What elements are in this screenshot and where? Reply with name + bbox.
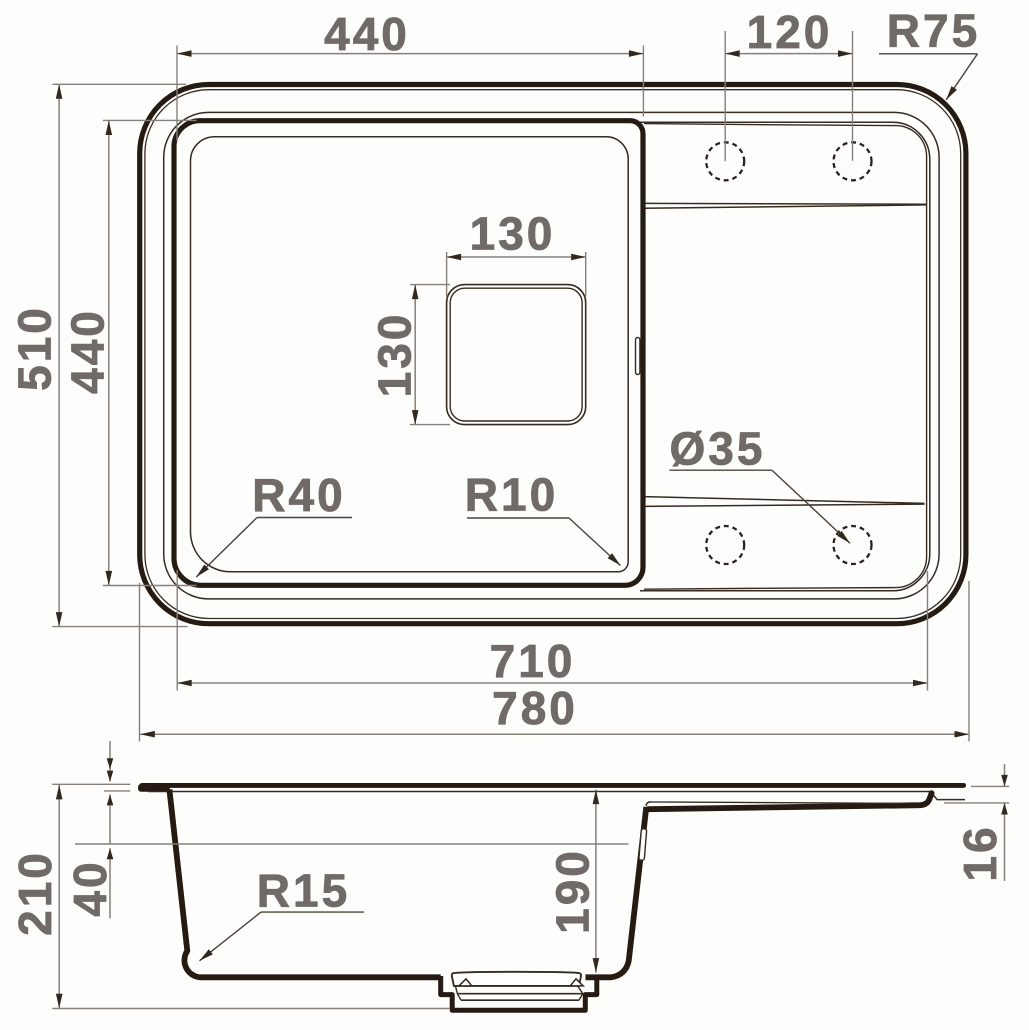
svg-text:710: 710	[490, 635, 576, 687]
svg-text:R40: R40	[252, 469, 345, 521]
svg-text:R10: R10	[465, 469, 558, 521]
svg-text:R75: R75	[887, 5, 980, 57]
svg-text:40: 40	[64, 859, 116, 916]
svg-text:Ø35: Ø35	[670, 423, 766, 475]
svg-text:130: 130	[470, 208, 556, 260]
svg-text:510: 510	[9, 305, 61, 391]
svg-text:130: 130	[369, 312, 421, 398]
svg-text:16: 16	[954, 824, 1006, 881]
svg-text:440: 440	[324, 8, 410, 60]
svg-text:120: 120	[747, 6, 833, 58]
svg-text:R15: R15	[257, 865, 350, 917]
svg-text:210: 210	[9, 850, 61, 936]
svg-text:190: 190	[546, 848, 598, 934]
svg-text:780: 780	[492, 682, 578, 734]
svg-text:440: 440	[62, 308, 114, 394]
